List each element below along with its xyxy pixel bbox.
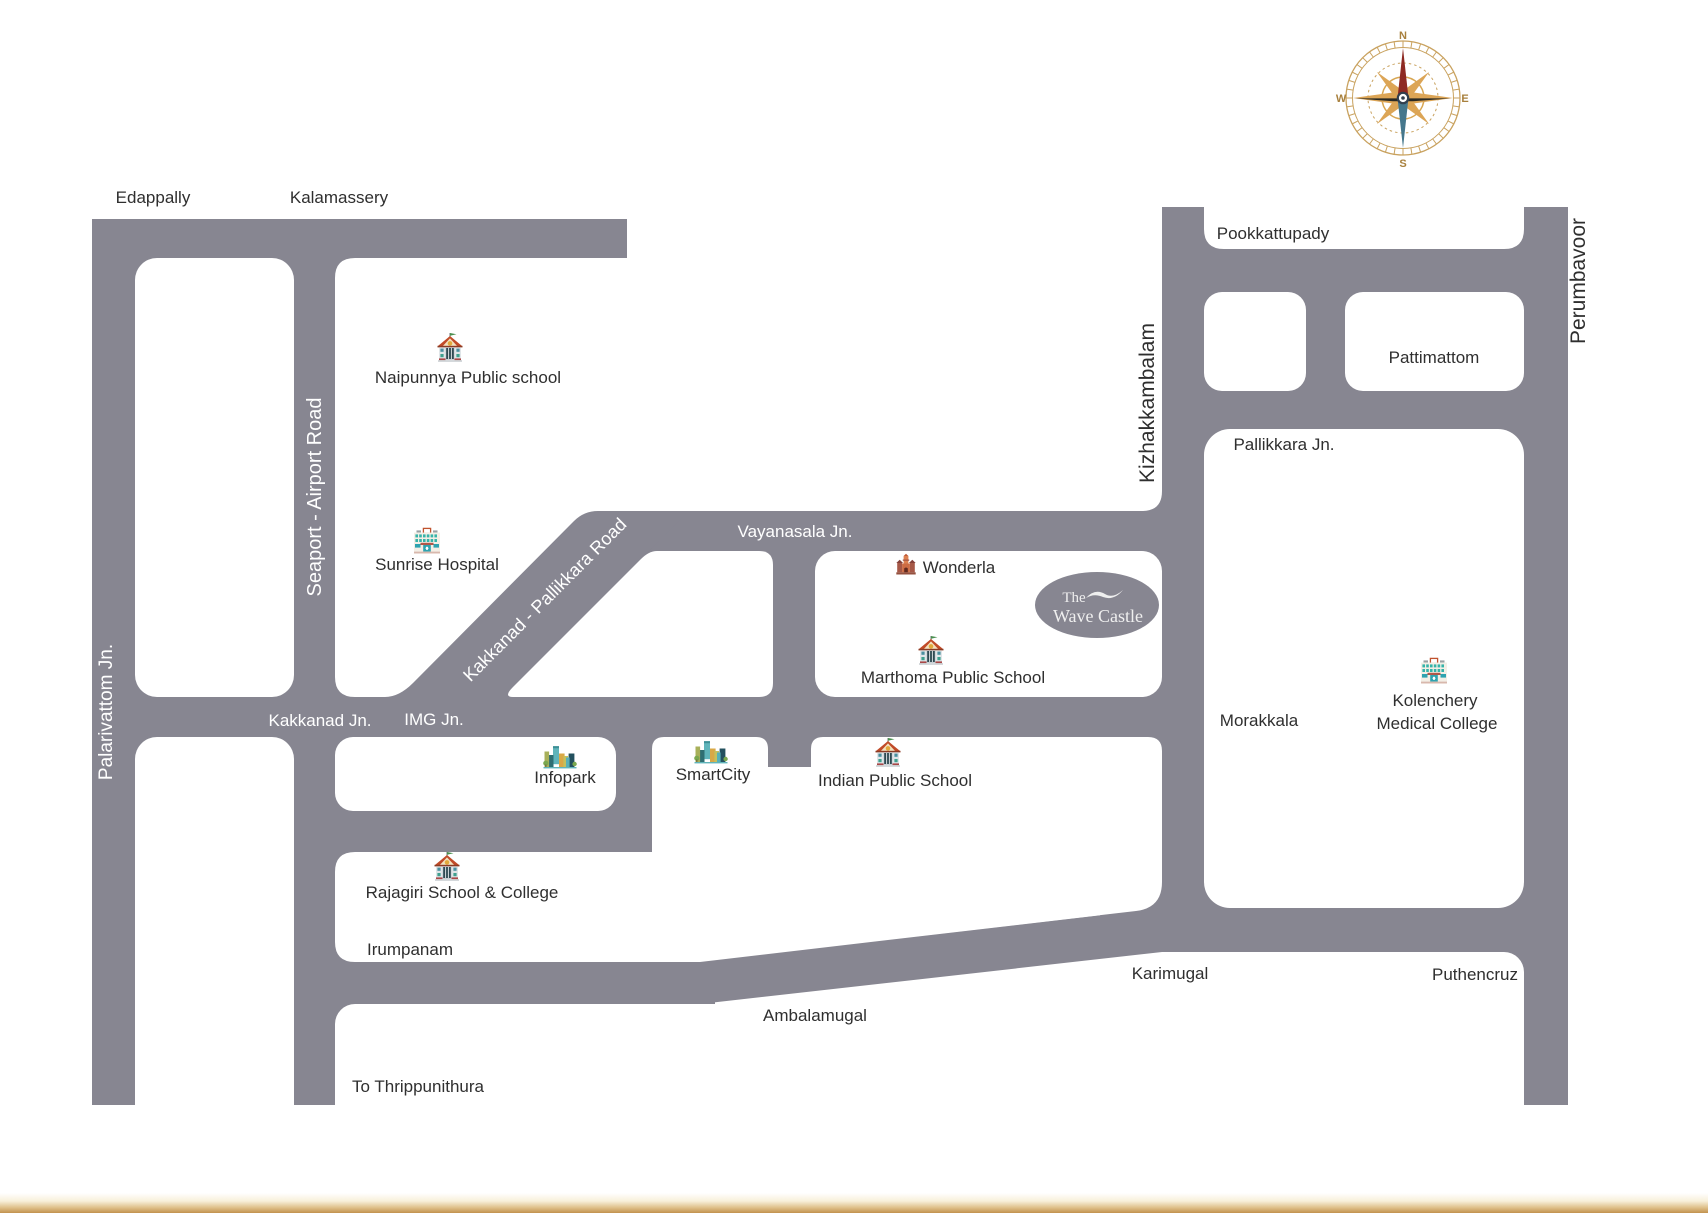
- svg-text:Kolenchery: Kolenchery: [1392, 691, 1478, 710]
- svg-text:Perumbavoor: Perumbavoor: [1567, 218, 1590, 344]
- svg-text:Medical College: Medical College: [1377, 714, 1498, 733]
- svg-text:Palarivattom Jn.: Palarivattom Jn.: [96, 644, 117, 780]
- svg-text:Wave Castle: Wave Castle: [1053, 606, 1143, 626]
- svg-text:Pallikkara Jn.: Pallikkara Jn.: [1233, 435, 1334, 454]
- svg-text:To Thrippunithura: To Thrippunithura: [352, 1077, 485, 1096]
- svg-text:Rajagiri School & College: Rajagiri School & College: [366, 883, 559, 902]
- svg-text:Morakkala: Morakkala: [1220, 711, 1299, 730]
- svg-text:Wonderla: Wonderla: [923, 558, 996, 577]
- svg-text:Marthoma Public School: Marthoma Public School: [861, 668, 1045, 687]
- svg-text:Irumpanam: Irumpanam: [367, 940, 453, 959]
- svg-text:Pookkattupady: Pookkattupady: [1217, 224, 1330, 243]
- svg-text:Edappally: Edappally: [116, 188, 191, 207]
- svg-text:Infopark: Infopark: [534, 768, 596, 787]
- svg-text:E: E: [1461, 93, 1468, 105]
- svg-text:IMG Jn.: IMG Jn.: [404, 710, 464, 729]
- svg-text:Kakkanad Jn.: Kakkanad Jn.: [268, 711, 371, 730]
- svg-text:Kalamassery: Kalamassery: [290, 188, 389, 207]
- svg-text:Seaport - Airport Road: Seaport - Airport Road: [304, 398, 326, 597]
- svg-text:Pattimattom: Pattimattom: [1389, 348, 1480, 367]
- svg-text:W: W: [1336, 93, 1347, 105]
- svg-text:Naipunnya Public school: Naipunnya Public school: [375, 368, 561, 387]
- svg-text:Sunrise Hospital: Sunrise Hospital: [375, 555, 499, 574]
- svg-text:SmartCity: SmartCity: [676, 765, 751, 784]
- svg-text:The: The: [1062, 590, 1086, 606]
- svg-text:Karimugal: Karimugal: [1132, 964, 1209, 983]
- svg-text:S: S: [1399, 158, 1406, 170]
- svg-text:Ambalamugal: Ambalamugal: [763, 1006, 867, 1025]
- svg-text:Puthencruz: Puthencruz: [1432, 965, 1518, 984]
- svg-text:Indian Public School: Indian Public School: [818, 771, 972, 790]
- svg-text:Vayanasala Jn.: Vayanasala Jn.: [738, 522, 853, 541]
- svg-text:N: N: [1399, 30, 1407, 42]
- svg-text:Kizhakkambalam: Kizhakkambalam: [1136, 323, 1159, 483]
